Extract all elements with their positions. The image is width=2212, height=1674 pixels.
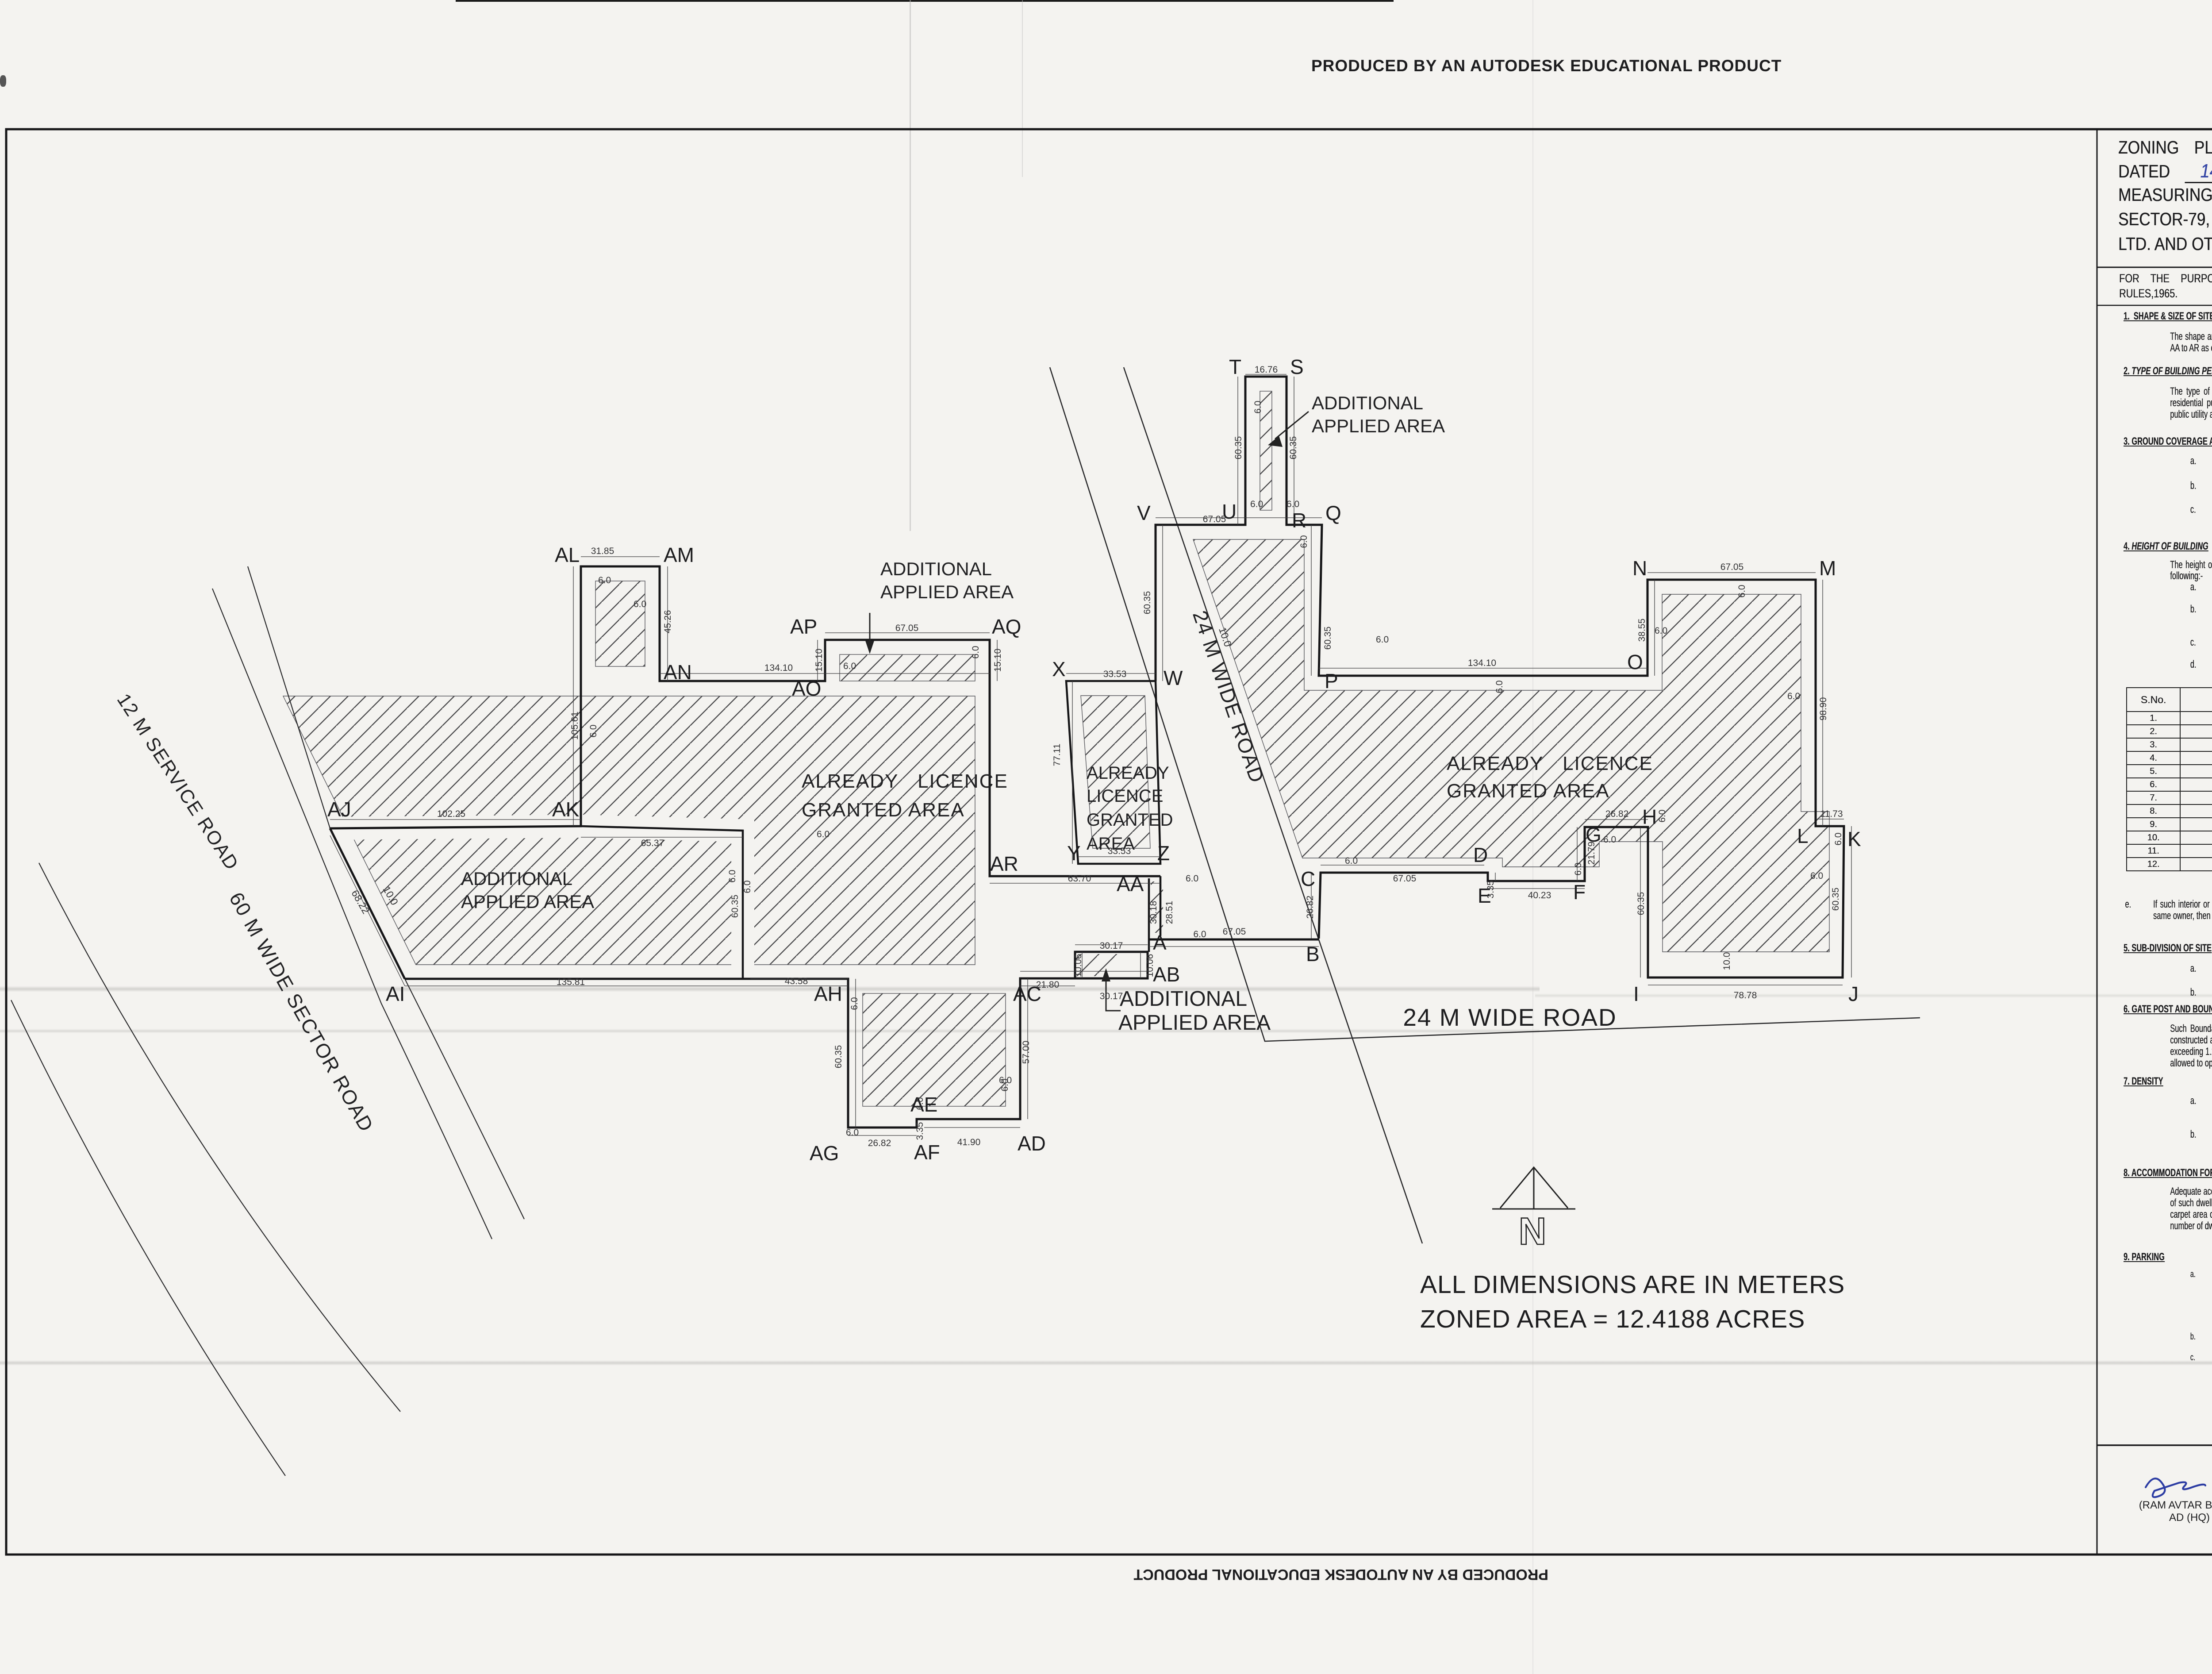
- svg-text:ZONED AREA = 12.4188 ACRES: ZONED AREA = 12.4188 ACRES: [1420, 1305, 1805, 1333]
- svg-text:67.05: 67.05: [1720, 562, 1744, 572]
- svg-text:26.82: 26.82: [868, 1138, 891, 1148]
- svg-text:134.10: 134.10: [764, 663, 793, 673]
- svg-text:GRANTED: GRANTED: [1087, 810, 1173, 830]
- svg-text:M: M: [1819, 557, 1836, 580]
- svg-text:6.0: 6.0: [1833, 832, 1843, 845]
- svg-text:APPLIED AREA: APPLIED AREA: [1312, 416, 1445, 436]
- svg-text:AQ: AQ: [992, 615, 1021, 638]
- svg-text:AF: AF: [914, 1141, 940, 1164]
- svg-text:6.0: 6.0: [742, 880, 753, 893]
- svg-text:GRANTED AREA: GRANTED AREA: [802, 799, 965, 821]
- svg-text:135.81: 135.81: [557, 977, 585, 987]
- svg-text:6.0: 6.0: [971, 646, 981, 658]
- svg-text:6.0: 6.0: [1253, 400, 1263, 413]
- svg-text:6.0: 6.0: [817, 829, 829, 839]
- svg-text:6.0: 6.0: [1299, 535, 1309, 548]
- svg-text:R: R: [1292, 509, 1306, 532]
- svg-text:6.0: 6.0: [1250, 499, 1263, 509]
- svg-text:26.82: 26.82: [1605, 809, 1629, 819]
- svg-text:10.0: 10.0: [1722, 952, 1732, 970]
- svg-text:65.37: 65.37: [641, 838, 664, 848]
- svg-text:60.35: 60.35: [1233, 436, 1244, 460]
- svg-text:60.35: 60.35: [1831, 888, 1841, 911]
- svg-text:10.06: 10.06: [1145, 954, 1155, 977]
- svg-text:12 M SERVICE ROAD: 12 M SERVICE ROAD: [113, 690, 243, 874]
- svg-text:AB: AB: [1153, 963, 1180, 986]
- svg-text:H: H: [1642, 805, 1657, 828]
- svg-text:6.0: 6.0: [846, 1128, 859, 1138]
- svg-text:6.0: 6.0: [1603, 835, 1616, 845]
- svg-text:AD: AD: [1018, 1132, 1046, 1155]
- svg-text:AP: AP: [790, 615, 817, 638]
- svg-text:N: N: [1519, 1210, 1546, 1253]
- svg-text:S: S: [1290, 355, 1304, 378]
- svg-text:102.25: 102.25: [437, 809, 465, 819]
- svg-text:105.61: 105.61: [570, 712, 580, 740]
- svg-text:3.35: 3.35: [915, 1122, 925, 1140]
- svg-text:ALREADY: ALREADY: [1087, 763, 1169, 783]
- svg-text:ALL DIMENSIONS ARE IN METERS: ALL DIMENSIONS ARE IN METERS: [1420, 1270, 1845, 1299]
- svg-text:C: C: [1301, 867, 1315, 890]
- svg-text:ADDITIONAL: ADDITIONAL: [461, 868, 572, 889]
- svg-text:134.10: 134.10: [1468, 658, 1496, 668]
- svg-text:AK: AK: [552, 798, 580, 821]
- svg-text:21.80: 21.80: [1036, 980, 1060, 990]
- svg-text:30.17: 30.17: [1100, 941, 1123, 951]
- svg-text:21.79: 21.79: [1586, 842, 1597, 865]
- svg-text:60.35: 60.35: [1323, 627, 1333, 650]
- svg-text:15.10: 15.10: [814, 649, 824, 672]
- svg-text:ADDITIONAL: ADDITIONAL: [880, 558, 992, 579]
- svg-text:6.0: 6.0: [1657, 809, 1667, 822]
- svg-text:28.51: 28.51: [1164, 901, 1175, 924]
- svg-text:6.0: 6.0: [727, 870, 737, 882]
- svg-text:33.53: 33.53: [1108, 846, 1131, 856]
- svg-text:6.0: 6.0: [1810, 871, 1823, 881]
- svg-text:AM: AM: [664, 543, 694, 566]
- svg-text:68.22: 68.22: [349, 888, 372, 916]
- svg-text:APPLIED AREA: APPLIED AREA: [461, 891, 594, 912]
- svg-text:24 M WIDE ROAD: 24 M WIDE ROAD: [1403, 1004, 1617, 1031]
- svg-text:38.55: 38.55: [1637, 619, 1647, 642]
- svg-text:6.0: 6.0: [1193, 929, 1206, 939]
- svg-text:L: L: [1797, 824, 1809, 847]
- svg-text:45.26: 45.26: [663, 610, 673, 634]
- svg-text:6.0: 6.0: [1787, 691, 1800, 701]
- svg-text:6.0: 6.0: [1573, 862, 1583, 875]
- svg-text:V: V: [1137, 501, 1151, 524]
- svg-text:30.18: 30.18: [1148, 901, 1159, 924]
- svg-text:30.17: 30.17: [1100, 991, 1123, 1001]
- svg-text:AR: AR: [990, 852, 1018, 875]
- svg-text:6.0: 6.0: [915, 1097, 925, 1110]
- svg-text:63.70: 63.70: [1068, 874, 1091, 884]
- svg-text:Z: Z: [1157, 842, 1170, 865]
- svg-text:67.05: 67.05: [1393, 874, 1417, 884]
- svg-text:APPLIED AREA: APPLIED AREA: [1118, 1011, 1271, 1035]
- svg-text:11.73: 11.73: [1820, 809, 1843, 819]
- svg-text:57.00: 57.00: [1021, 1041, 1031, 1064]
- svg-text:AL: AL: [555, 543, 580, 566]
- svg-text:40.23: 40.23: [1528, 890, 1551, 900]
- svg-text:3.35: 3.35: [1486, 881, 1496, 899]
- svg-text:6.0: 6.0: [1286, 499, 1299, 509]
- svg-text:AG: AG: [810, 1142, 839, 1165]
- svg-text:A: A: [1153, 931, 1167, 954]
- svg-text:6.0: 6.0: [598, 575, 611, 585]
- svg-text:K: K: [1847, 827, 1861, 850]
- svg-text:67.05: 67.05: [1203, 514, 1226, 524]
- svg-text:15.10: 15.10: [993, 649, 1003, 672]
- svg-text:33.53: 33.53: [1103, 669, 1127, 679]
- svg-text:ADDITIONAL: ADDITIONAL: [1312, 393, 1423, 413]
- svg-text:AI: AI: [386, 982, 405, 1005]
- svg-text:16.76: 16.76: [1255, 365, 1278, 375]
- svg-text:6.0: 6.0: [843, 661, 856, 671]
- svg-text:AN: AN: [664, 661, 692, 684]
- svg-text:67.05: 67.05: [895, 623, 919, 633]
- svg-text:X: X: [1052, 658, 1066, 681]
- svg-text:GRANTED AREA: GRANTED AREA: [1447, 780, 1610, 802]
- svg-text:AJ: AJ: [327, 798, 351, 821]
- svg-text:I: I: [1633, 982, 1639, 1005]
- svg-text:60.35: 60.35: [1288, 436, 1298, 460]
- svg-text:6.0: 6.0: [1737, 585, 1747, 597]
- svg-text:W: W: [1164, 666, 1183, 689]
- svg-text:APPLIED AREA: APPLIED AREA: [880, 581, 1014, 602]
- svg-text:6.0: 6.0: [1345, 856, 1358, 866]
- svg-text:P: P: [1325, 670, 1338, 693]
- svg-text:60.35: 60.35: [1142, 591, 1152, 615]
- svg-text:6.0: 6.0: [1655, 626, 1667, 636]
- svg-text:6.0: 6.0: [849, 997, 860, 1010]
- svg-text:26.82: 26.82: [1305, 896, 1315, 919]
- svg-text:43.58: 43.58: [785, 976, 808, 986]
- svg-text:Y: Y: [1067, 842, 1081, 865]
- svg-text:J: J: [1848, 982, 1859, 1005]
- svg-text:Q: Q: [1325, 501, 1341, 524]
- svg-text:60 M WIDE SECTOR ROAD: 60 M WIDE SECTOR ROAD: [225, 889, 378, 1136]
- svg-text:ADDITIONAL: ADDITIONAL: [1120, 987, 1247, 1011]
- svg-text:O: O: [1627, 650, 1643, 673]
- svg-text:6.0: 6.0: [634, 599, 646, 609]
- svg-text:AA: AA: [1117, 873, 1144, 896]
- svg-text:60.35: 60.35: [833, 1045, 844, 1069]
- svg-text:31.85: 31.85: [591, 546, 614, 556]
- svg-text:60.35: 60.35: [1636, 892, 1646, 916]
- svg-text:B: B: [1306, 943, 1320, 966]
- svg-text:67.05: 67.05: [1223, 927, 1246, 937]
- svg-text:T: T: [1229, 355, 1241, 378]
- svg-text:AO: AO: [792, 677, 821, 700]
- svg-text:6.0: 6.0: [1000, 1078, 1010, 1091]
- svg-text:ALREADY LICENCE: ALREADY LICENCE: [802, 770, 1008, 792]
- svg-text:F: F: [1573, 881, 1586, 904]
- svg-text:N: N: [1632, 557, 1647, 580]
- svg-text:98.90: 98.90: [1818, 697, 1828, 721]
- svg-text:D: D: [1473, 843, 1488, 866]
- svg-text:10.06: 10.06: [1073, 954, 1083, 977]
- svg-text:60.35: 60.35: [730, 895, 740, 918]
- svg-text:41.90: 41.90: [957, 1137, 981, 1147]
- svg-text:LICENCE: LICENCE: [1087, 786, 1163, 806]
- svg-text:6.0: 6.0: [1376, 635, 1389, 645]
- svg-text:ALREADY LICENCE: ALREADY LICENCE: [1447, 753, 1653, 774]
- svg-text:AH: AH: [814, 982, 842, 1005]
- svg-text:6.0: 6.0: [588, 724, 599, 737]
- svg-text:78.78: 78.78: [1734, 990, 1757, 1001]
- svg-text:6.0: 6.0: [1186, 874, 1198, 884]
- svg-text:6.0: 6.0: [1494, 680, 1505, 693]
- svg-text:77.11: 77.11: [1052, 744, 1062, 766]
